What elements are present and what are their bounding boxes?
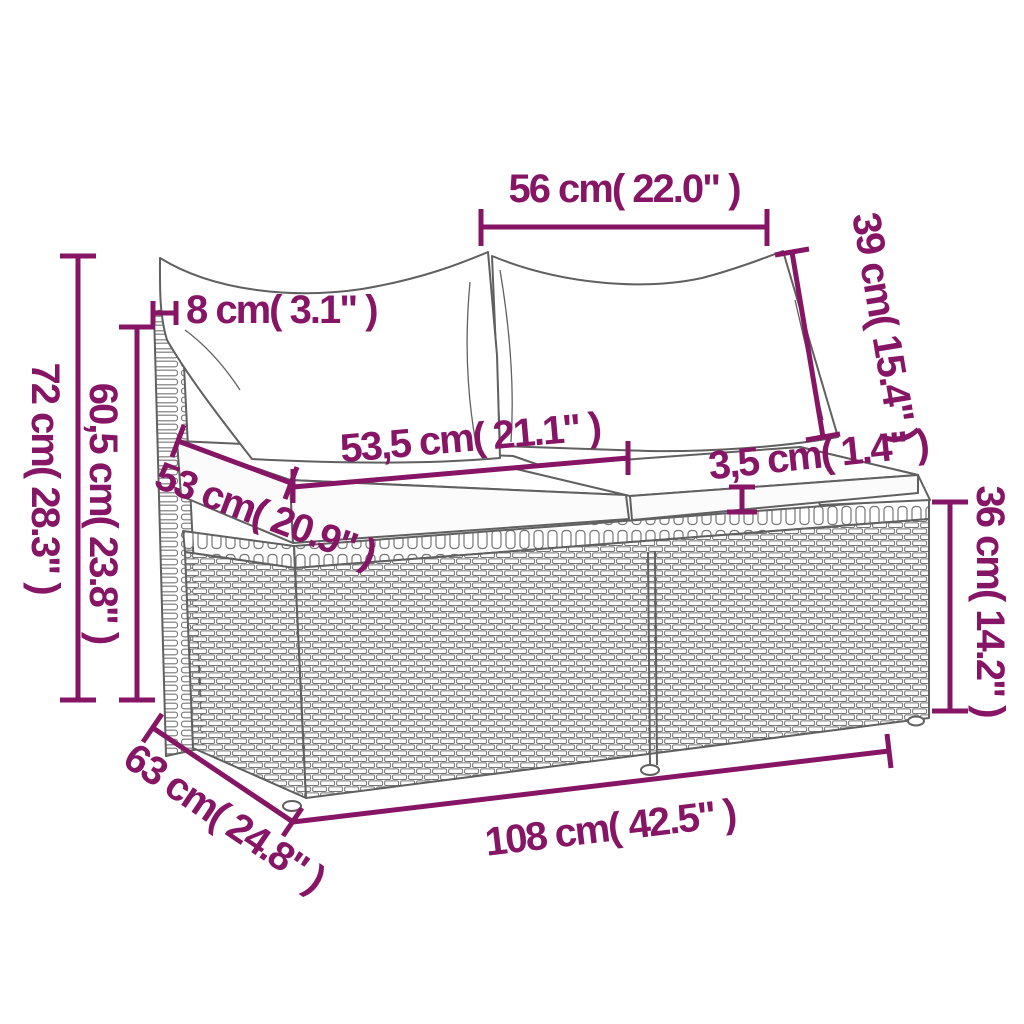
dim-line-top-width [481, 209, 767, 246]
dim-label-back-height: 60,5 cm( 23.8" ) [83, 383, 123, 643]
dim-label-total-height: 72 cm( 28.3" ) [25, 362, 65, 593]
foot [908, 717, 924, 726]
foot [641, 765, 659, 775]
dim-label-top-width: 56 cm( 22.0" ) [508, 169, 739, 209]
dim-label-back-thickness: 8 cm( 3.1" ) [186, 290, 377, 330]
dim-label-base-height: 36 cm( 14.2" ) [970, 485, 1010, 716]
sofa-illustration [0, 0, 1024, 1024]
dim-line-base-height [932, 502, 968, 711]
dimension-diagram: 56 cm( 22.0" ) 39 cm( 15.4" ) 8 cm( 3.1"… [0, 0, 1024, 1024]
